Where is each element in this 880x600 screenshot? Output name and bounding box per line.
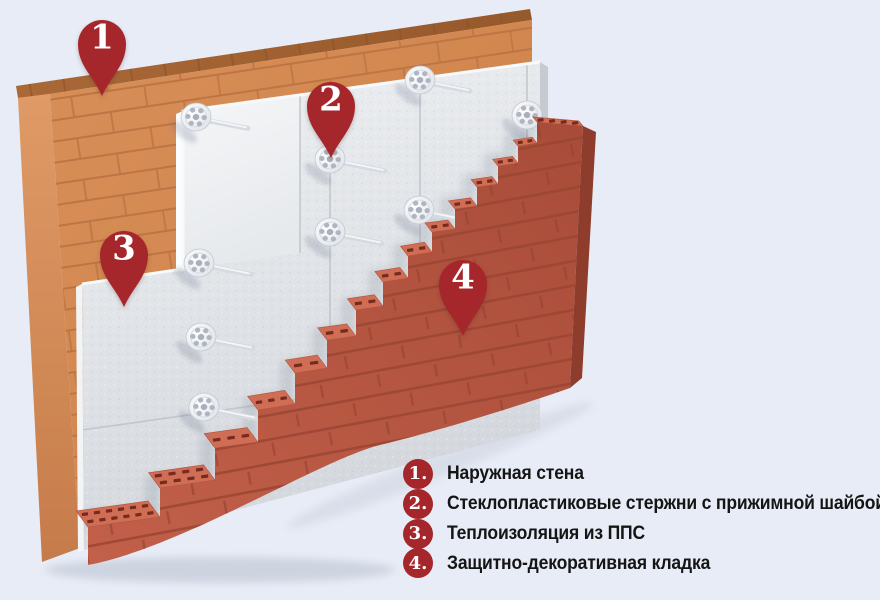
legend-number-badge: 1. (403, 459, 433, 489)
legend-item: 2. Стеклопластиковые стержни с прижимной… (403, 489, 880, 519)
legend: 1. Наружная стена 2. Стеклопластиковые с… (403, 459, 880, 578)
legend-number-badge: 3. (403, 519, 433, 549)
diagram-canvas: 1 2 3 4 1. Наружная стена 2. Стеклопласт… (0, 0, 880, 600)
legend-number-badge: 2. (403, 489, 433, 519)
legend-item-label: Стеклопластиковые стержни с прижимной ша… (447, 492, 880, 515)
legend-number-badge: 4. (403, 548, 433, 578)
legend-item-label: Наружная стена (447, 462, 584, 485)
legend-item-label: Теплоизоляция из ППС (447, 522, 645, 545)
legend-item-label: Защитно-декоративная кладка (447, 552, 710, 575)
legend-item: 1. Наружная стена (403, 459, 880, 489)
legend-item: 3. Теплоизоляция из ППС (403, 519, 880, 549)
legend-item: 4. Защитно-декоративная кладка (403, 548, 880, 578)
